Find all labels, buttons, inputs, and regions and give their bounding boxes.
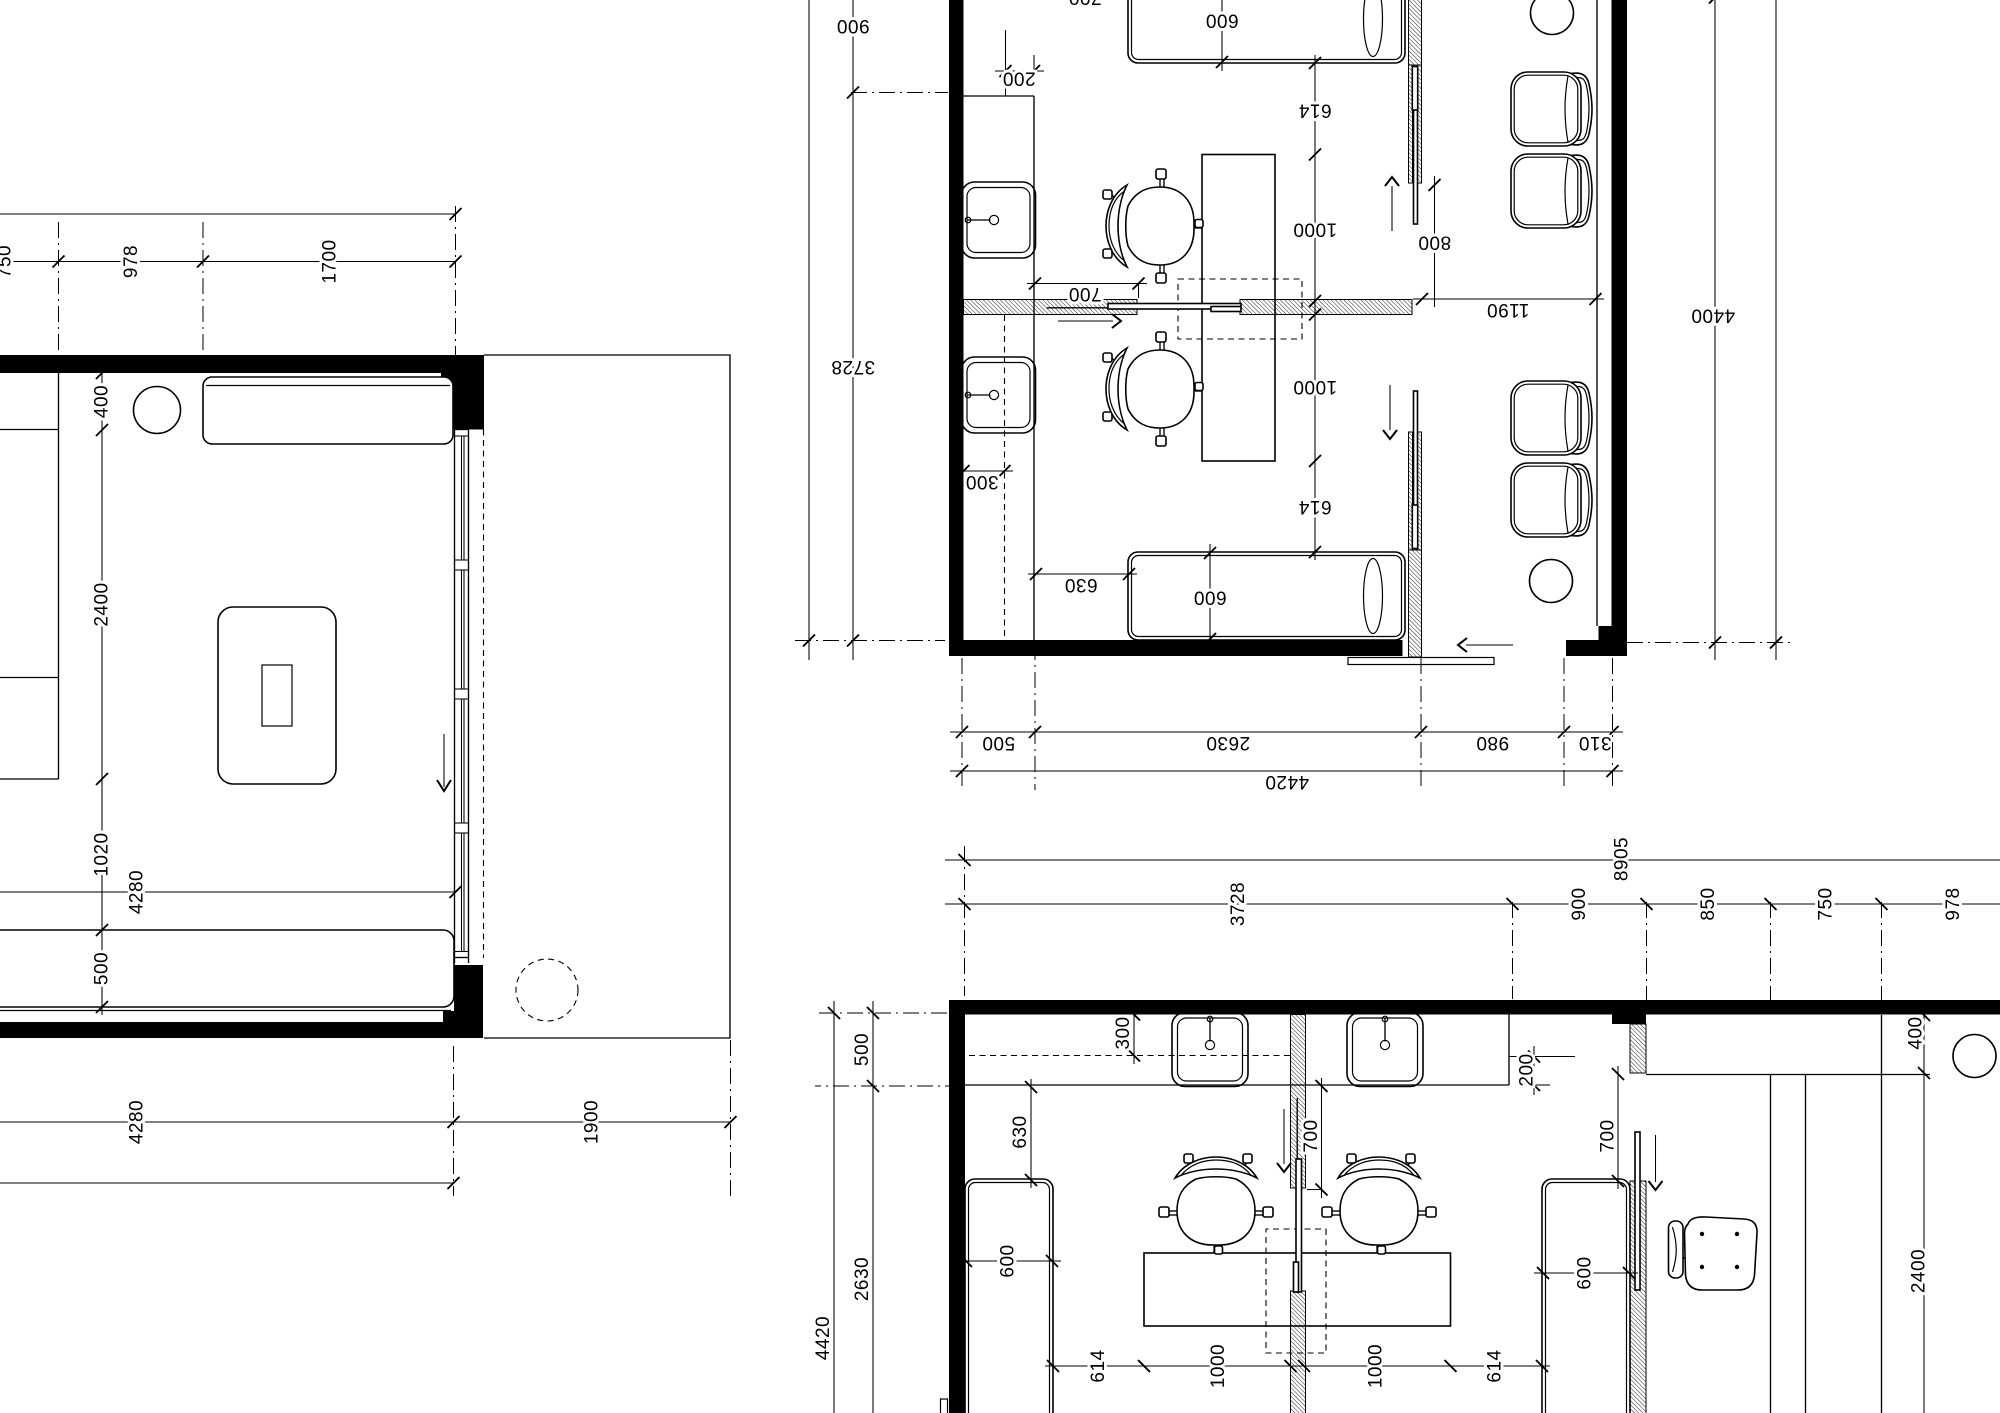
svg-text:978: 978 xyxy=(121,245,142,278)
svg-text:3728: 3728 xyxy=(831,356,875,377)
svg-text:900: 900 xyxy=(836,15,869,36)
svg-text:2400: 2400 xyxy=(92,582,113,626)
svg-text:1020: 1020 xyxy=(92,832,113,876)
svg-text:800: 800 xyxy=(1418,232,1451,253)
svg-text:980: 980 xyxy=(1476,732,1509,753)
svg-text:1900: 1900 xyxy=(582,1100,603,1144)
svg-text:500: 500 xyxy=(92,952,113,985)
svg-text:700: 700 xyxy=(1068,283,1101,304)
svg-text:600: 600 xyxy=(1205,10,1238,31)
svg-text:750: 750 xyxy=(0,245,16,278)
svg-text:630: 630 xyxy=(1064,574,1097,595)
svg-text:310: 310 xyxy=(1578,732,1611,753)
svg-text:4420: 4420 xyxy=(1265,771,1309,792)
svg-text:1190: 1190 xyxy=(1487,299,1530,320)
svg-text:1000: 1000 xyxy=(1293,219,1337,240)
svg-text:400: 400 xyxy=(92,385,113,418)
svg-text:1700: 1700 xyxy=(320,239,341,283)
svg-text:614: 614 xyxy=(1298,496,1331,517)
svg-text:1000: 1000 xyxy=(1293,376,1337,397)
svg-text:4280: 4280 xyxy=(127,1100,148,1144)
svg-text:4400: 4400 xyxy=(1691,305,1735,326)
svg-text:700: 700 xyxy=(1068,0,1101,8)
svg-text:200: 200 xyxy=(1002,68,1035,89)
svg-text:600: 600 xyxy=(1193,587,1226,608)
svg-text:2630: 2630 xyxy=(1206,732,1250,753)
svg-text:4280: 4280 xyxy=(127,870,148,914)
svg-text:500: 500 xyxy=(982,732,1015,753)
svg-text:614: 614 xyxy=(1298,100,1331,121)
svg-text:300: 300 xyxy=(965,471,998,492)
